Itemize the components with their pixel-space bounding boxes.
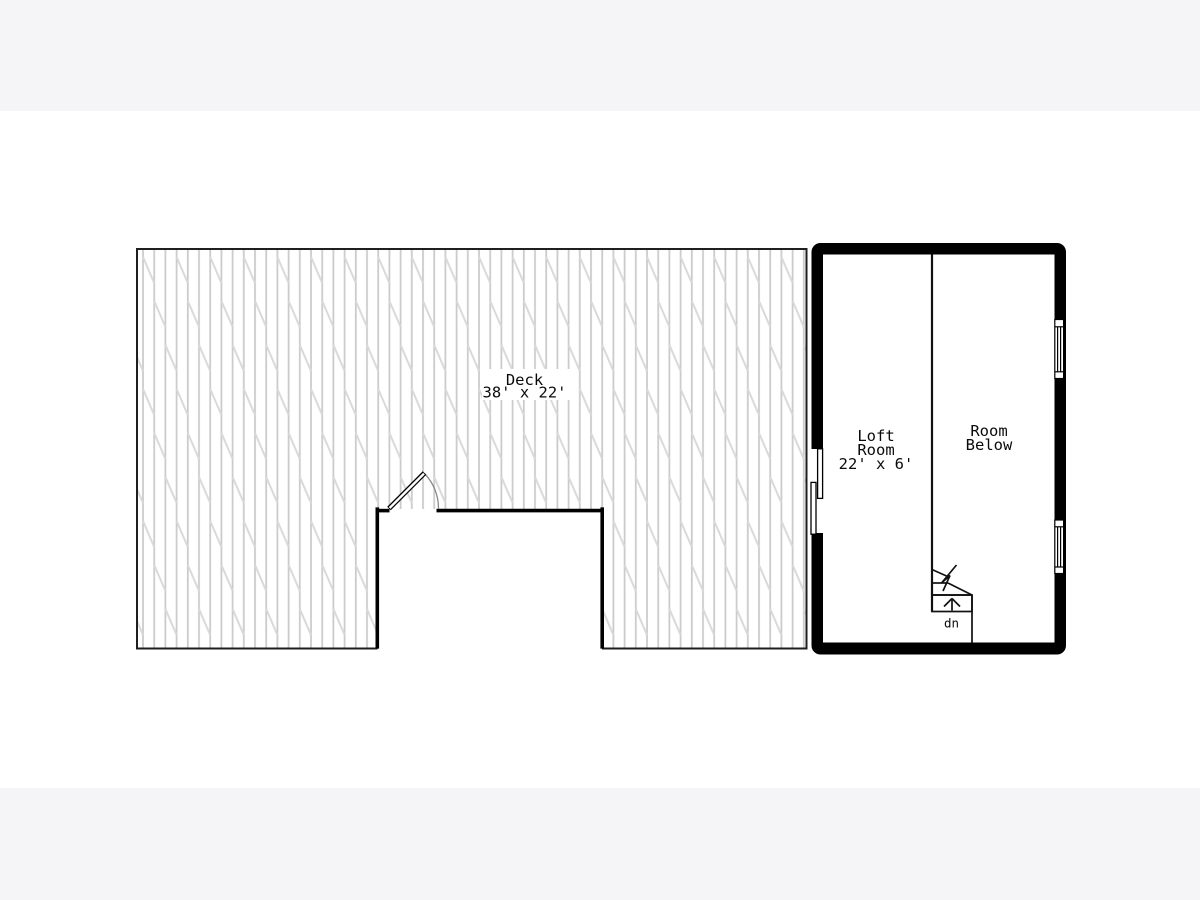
deck-dimensions-label: 38' x 22' xyxy=(483,384,567,402)
room-below-label: Room Below xyxy=(966,422,1013,454)
window-lower xyxy=(1055,520,1064,574)
floor-plan-svg: Deck 38' x 22' xyxy=(0,0,1200,900)
window-frame xyxy=(1055,320,1064,379)
deck: Deck 38' x 22' xyxy=(137,249,807,651)
window-upper xyxy=(1055,320,1064,379)
room-below-label-line2: Below xyxy=(966,436,1013,454)
sliding-door xyxy=(808,449,824,534)
sliding-door-panel-inner xyxy=(818,449,823,499)
loft-structure: dn Loft Room 22' x 6' Room Below xyxy=(808,243,1067,655)
deck-notch xyxy=(378,509,603,651)
window-frame xyxy=(1055,520,1064,574)
floor-plan-canvas: Deck 38' x 22' xyxy=(0,0,1200,900)
sliding-door-panel-outer xyxy=(811,482,816,534)
loft-room-dimensions-label: 22' x 6' xyxy=(839,455,914,473)
stair-direction-label: dn xyxy=(944,616,959,631)
